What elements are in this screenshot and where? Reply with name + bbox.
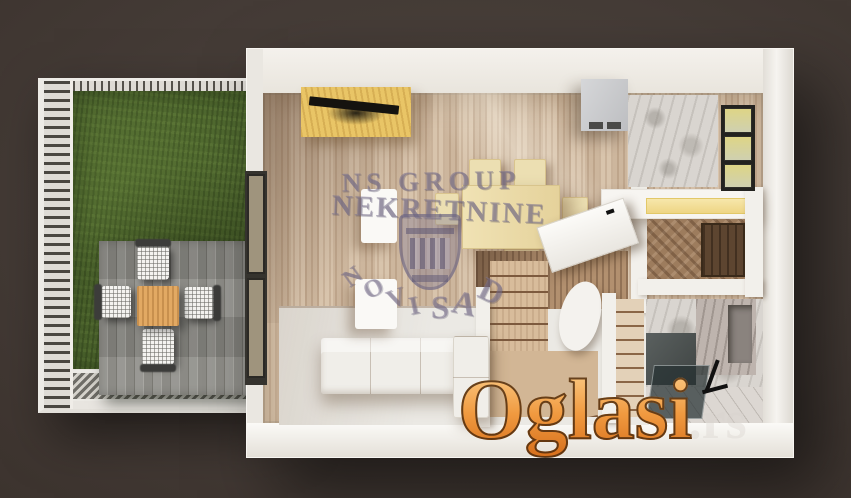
- fridge-vent: [589, 122, 603, 129]
- glass-pane: [247, 278, 265, 378]
- hall-wall: [745, 187, 763, 297]
- fence-bottom: [73, 401, 272, 409]
- tv-cabinet: [301, 87, 411, 137]
- watermark-city-text: NOVISAD: [344, 256, 544, 293]
- fridge-vent: [607, 122, 621, 129]
- shield-band: [406, 228, 453, 234]
- patio-chair-east: [184, 287, 214, 319]
- window-pane: [724, 136, 752, 161]
- shower-niche: [728, 305, 752, 363]
- chair-back: [94, 284, 102, 320]
- bathroom-marble-wall: [696, 299, 756, 375]
- site-logo-name: Oglasi: [458, 361, 692, 457]
- window-pane: [724, 164, 752, 189]
- floorplan-render: NS GROUP NEKRETNINE NOVISAD Oglasi.rs: [0, 0, 851, 498]
- terrace-glass-door: [245, 171, 267, 385]
- entrance-door: [701, 223, 745, 277]
- chair-back: [140, 364, 176, 372]
- patio-chair-west: [101, 286, 131, 318]
- sofa: [321, 338, 471, 394]
- fence-left: [44, 81, 73, 409]
- chair-back: [213, 285, 221, 321]
- patio-chair-north: [137, 246, 169, 280]
- patio-chair-south: [142, 329, 174, 365]
- glass-pane: [247, 174, 265, 274]
- kitchen-window: [721, 105, 755, 191]
- wall-right: [763, 49, 793, 457]
- door-handle: [606, 209, 615, 215]
- fridge: [581, 79, 628, 131]
- window-pane: [724, 108, 752, 133]
- garden-terrace: [38, 78, 272, 413]
- site-watermark: Oglasi.rs: [458, 366, 747, 452]
- kitchen-stone-wall: [628, 95, 718, 187]
- chair-back: [135, 239, 171, 247]
- site-logo-tld: .rs: [688, 390, 746, 450]
- kitchen-cabinet-front: [646, 198, 750, 214]
- fence-top: [73, 81, 272, 91]
- patio-table: [137, 286, 179, 326]
